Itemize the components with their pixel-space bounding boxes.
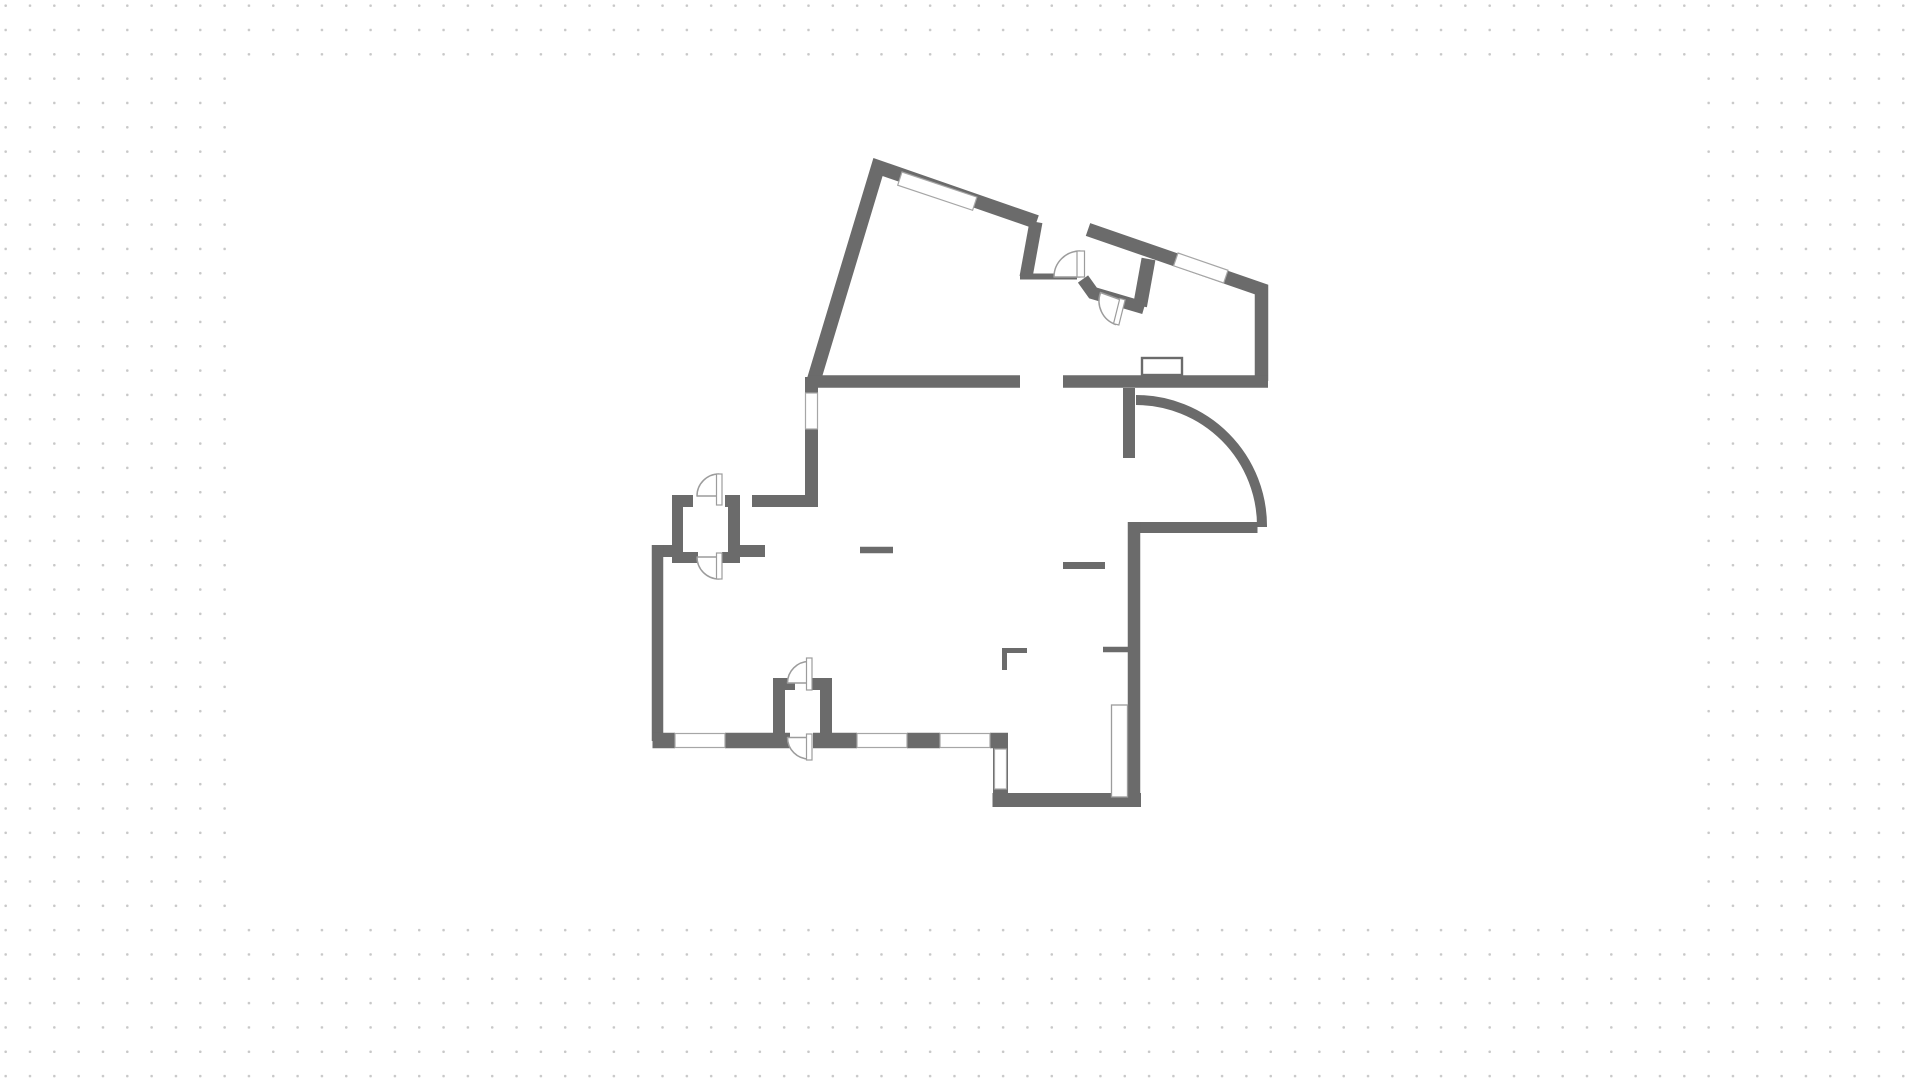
door-alcove-top-leaf — [807, 658, 813, 690]
door-closet-top-swing — [697, 474, 719, 496]
window-upper-left-vertical — [806, 393, 818, 429]
wall-toproom-right — [1026, 222, 1036, 277]
door-closet-bottom-swing — [697, 557, 719, 579]
outer-wall-top-left — [814, 167, 1037, 381]
door-vestibule-left-leaf — [1077, 251, 1085, 277]
floorplan-svg — [0, 0, 1920, 1078]
wall-vestibule-inner-right — [1140, 259, 1149, 306]
large-curved-opening-arc — [1136, 400, 1262, 527]
door-entry-bottom-swing — [788, 738, 810, 760]
window-bottomright-left-wall — [995, 749, 1007, 789]
door-alcove-top-swing — [788, 662, 810, 684]
door-closet-top-leaf — [717, 474, 723, 505]
window-vestibule-wall — [1174, 253, 1228, 283]
door-entry-bottom-leaf — [807, 734, 813, 760]
frames-layer — [1112, 358, 1183, 797]
door-closet-bottom-leaf — [717, 553, 723, 579]
door-arcs-layer — [1136, 400, 1262, 527]
wall-niche-frame — [1142, 358, 1182, 375]
floorplan-drawing[interactable] — [652, 167, 1268, 806]
window-bottom-wall-1 — [675, 734, 725, 748]
window-bottom-wall-3 — [940, 734, 990, 748]
open-door-leaf-bottomright — [1112, 705, 1128, 797]
door-vestibule-left-swing — [1054, 251, 1080, 277]
window-bottom-wall-2 — [857, 734, 907, 748]
